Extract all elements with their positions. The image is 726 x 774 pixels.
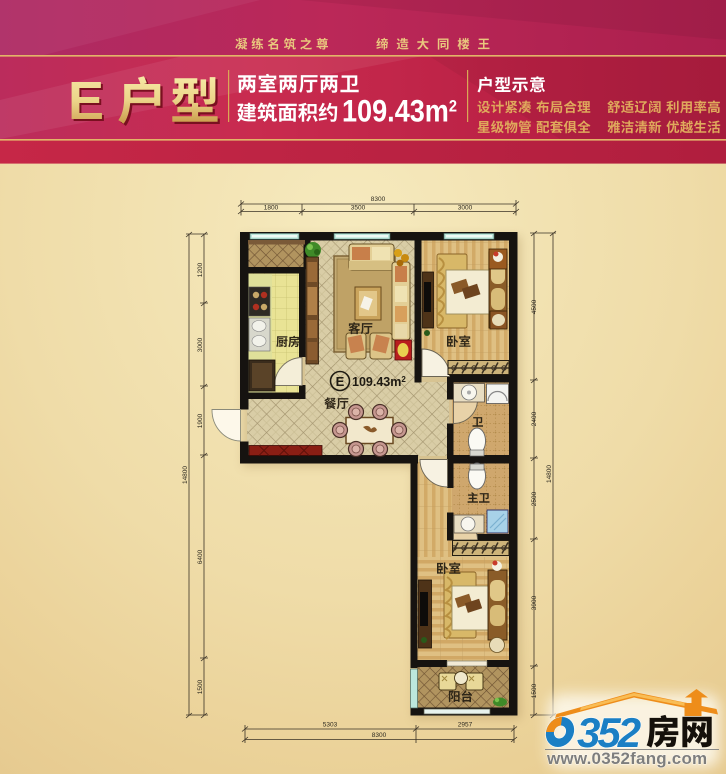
svg-text:109.43m2: 109.43m2 — [342, 94, 457, 129]
svg-text:3500: 3500 — [351, 205, 366, 212]
svg-text:8300: 8300 — [371, 196, 386, 203]
svg-text:E: E — [68, 71, 104, 131]
svg-text:1900: 1900 — [197, 413, 204, 428]
svg-text:2500: 2500 — [531, 491, 538, 506]
svg-text:3900: 3900 — [531, 595, 538, 610]
svg-text:2957: 2957 — [458, 722, 473, 729]
svg-text:1500: 1500 — [197, 679, 204, 694]
svg-text:4500: 4500 — [531, 299, 538, 314]
svg-text:1800: 1800 — [264, 205, 279, 212]
svg-text:14800: 14800 — [182, 466, 189, 484]
svg-text:3000: 3000 — [197, 337, 204, 352]
svg-text:E: E — [336, 374, 345, 389]
svg-text:1500: 1500 — [531, 683, 538, 698]
svg-text:14800: 14800 — [546, 465, 553, 483]
svg-text:109.43m2: 109.43m2 — [352, 375, 406, 389]
svg-text:3000: 3000 — [458, 205, 473, 212]
svg-text:8300: 8300 — [372, 732, 387, 739]
svg-text:2400: 2400 — [531, 411, 538, 426]
svg-text:www.0352fang.com: www.0352fang.com — [546, 749, 707, 768]
svg-text:5303: 5303 — [323, 722, 338, 729]
svg-text:6400: 6400 — [197, 549, 204, 564]
svg-text:1200: 1200 — [197, 262, 204, 277]
